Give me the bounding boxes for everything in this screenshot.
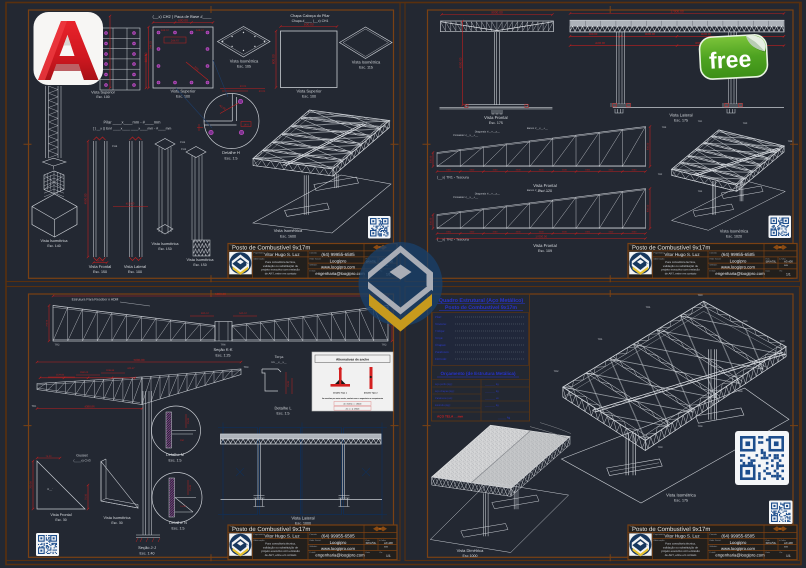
svg-text:450.00: 450.00 [126,202,135,206]
svg-text:Rede Social:: Rede Social: [310,539,322,542]
svg-text:Rede Social:: Rede Social: [710,539,722,542]
svg-text:Pilar ____x____mm - #____mm: Pilar ____x____mm - #____mm [104,120,162,125]
svg-text:75.00: 75.00 [85,493,88,500]
svg-text:Proprietário:: Proprietário: [654,533,665,536]
svg-text:164.67: 164.67 [161,29,169,32]
svg-text:[ ] __x () Enri ____x____ ____: [ ] __x () Enri ____x____ ____x____mm - … [93,127,172,131]
svg-text:Gusset: Gusset [76,454,87,458]
svg-text:TR1: TR1 [32,405,37,408]
svg-text:3400: 3400 [539,168,545,171]
svg-text:A3 400: A3 400 [384,541,393,545]
svg-text:www.loogipro.com: www.loogipro.com [321,546,355,551]
svg-text:engenharia@loogipro.com: engenharia@loogipro.com [715,271,765,276]
svg-text:AÇO TELA __mm: AÇO TELA __mm [437,415,463,419]
svg-text:700.00: 700.00 [46,319,49,326]
svg-text:1/1: 1/1 [386,554,391,558]
svg-text:TR3: TR3 [662,126,667,129]
svg-text:Vista Isométrica: Vista Isométrica [274,228,303,233]
svg-text:3400: 3400 [562,230,568,233]
svg-text:(__x) TR2 - Tesoura: (__x) TR2 - Tesoura [437,238,469,242]
svg-text:Esc. 175: Esc. 175 [674,499,688,503]
svg-text:Esc. 105: Esc. 105 [237,65,251,69]
svg-text:Detalhe Tipo 2: Detalhe Tipo 2 [364,392,379,395]
svg-text:Aço chapas (kg):: Aço chapas (kg): [435,390,455,393]
svg-text:Observação:: Observação: [654,257,666,260]
svg-text:430.00: 430.00 [96,259,104,262]
svg-text:TR9: TR9 [568,394,573,397]
svg-text:(64) 99955-6585: (64) 99955-6585 [721,533,755,538]
svg-text:Posto de Combustível 9x17m: Posto de Combustível 9x17m [632,526,710,533]
svg-text:3400: 3400 [446,168,452,171]
svg-text:Banzo #__x__+__: Banzo #__x__+__ [527,127,549,130]
svg-text:TR2: TR2 [658,173,663,176]
svg-text:8500.00: 8500.00 [701,32,712,36]
svg-text:Detalhe H: Detalhe H [222,150,240,155]
svg-text:Alternativas de ancho: Alternativas de ancho [336,358,369,362]
svg-text:Proprietário:: Proprietário: [654,251,665,254]
svg-text:164.67: 164.67 [196,29,204,32]
svg-text:Vista Superior: Vista Superior [170,89,196,94]
svg-text:R__': R__' [47,488,53,491]
svg-text:Posto de Combustível 9x17m: Posto de Combustível 9x17m [632,244,710,251]
svg-text:Contato:: Contato: [310,533,318,536]
svg-text:_______ kg: _______ kg [484,404,499,407]
svg-text:15.00: 15.00 [180,505,186,508]
svg-text:_____ kg: _____ kg [497,416,511,420]
svg-text:Terça: Terça [275,355,284,359]
svg-text:(64) 99955-6585: (64) 99955-6585 [321,252,355,257]
svg-text:Esc. 175: Esc. 175 [674,119,688,123]
svg-text:Data:: Data: [766,551,771,554]
svg-text:30.05: 30.05 [240,85,247,88]
svg-text:3400: 3400 [469,168,475,171]
svg-text:Parafusos (un):: Parafusos (un): [435,397,453,400]
svg-text:Esc. 1:5: Esc. 1:5 [169,459,182,463]
svg-text:8500.00: 8500.00 [645,32,656,36]
svg-text:Contato:: Contato: [710,533,718,536]
svg-text:Detalhe N: Detalhe N [169,520,187,525]
svg-text:Quadro Estrutural (Aço Metálic: Quadro Estrutural (Aço Metálico) [439,298,524,304]
svg-text:3400: 3400 [585,168,591,171]
svg-text:Parafusos:: Parafusos: [435,350,450,354]
svg-text:Observação:: Observação: [254,539,266,542]
svg-text:3400: 3400 [585,230,591,233]
svg-text:3400: 3400 [539,230,545,233]
svg-text:4388.86: 4388.86 [84,404,95,408]
svg-text:TR2: TR2 [608,418,613,421]
svg-text:Website:: Website: [310,264,318,267]
svg-text:_______ kg: _______ kg [484,390,499,393]
svg-text:BRASIL: BRASIL [766,259,777,263]
svg-text:CH4: CH4 [112,145,118,148]
svg-text:_______ kg: _______ kg [484,383,499,386]
svg-text:Fls:: Fls: [380,551,384,554]
svg-text:TR3: TR3 [788,140,793,143]
svg-text:Chapas:: Chapas: [435,343,446,347]
svg-text:Vista Lateral: Vista Lateral [124,264,146,269]
svg-text:Orçamento (de Estrutura Metáli: Orçamento (de Estrutura Metálica) [440,371,516,376]
svg-text:244.67: 244.67 [171,39,180,43]
svg-text:Proprietário:: Proprietário: [254,533,265,536]
svg-text:Website:: Website: [710,545,718,548]
svg-text:Esc. 100: Esc. 100 [128,270,142,274]
svg-text:4500.00: 4500.00 [84,193,88,204]
svg-text:TR6: TR6 [743,320,748,323]
svg-text:Esc. 100: Esc. 100 [176,95,190,99]
svg-text:75.00: 75.00 [187,417,190,424]
svg-text:3400: 3400 [446,230,452,233]
svg-text:TR1: TR1 [698,120,703,123]
svg-text:825.67: 825.67 [201,312,209,315]
svg-text:30.05: 30.05 [259,90,266,93]
svg-text:Vitor Hugo S. Luz: Vitor Hugo S. Luz [264,534,300,539]
svg-text:500.00: 500.00 [430,155,433,163]
svg-text:750.00: 750.00 [30,481,33,489]
svg-text:engenharia@loogipro.com: engenharia@loogipro.com [315,271,365,276]
svg-text:3400: 3400 [516,230,522,233]
svg-text:Esc. 1:25: Esc. 1:25 [216,354,231,358]
svg-text:Vista Lateral: Vista Lateral [669,113,692,118]
svg-text:500.00: 500.00 [589,32,598,36]
svg-text:75.00: 75.00 [189,484,192,491]
svg-text:TR0: TR0 [743,122,748,125]
svg-text:4500.00: 4500.00 [595,41,606,45]
svg-text:Esc. 175: Esc. 175 [489,121,503,125]
svg-text:Pilar:: Pilar: [435,315,442,319]
svg-text:TR2: TR2 [554,370,559,373]
svg-text:Esc. 150: Esc. 150 [158,247,171,251]
svg-text:TR1: TR1 [598,338,603,341]
svg-text:Treliça:: Treliça: [435,329,445,333]
svg-text:Vitor Hugo S. Luz: Vitor Hugo S. Luz [264,252,300,257]
svg-text:Rede Social:: Rede Social: [710,257,722,260]
svg-text:3400: 3400 [492,168,498,171]
svg-text:Proprietário:: Proprietário: [254,251,265,254]
svg-text:Data:: Data: [766,269,771,272]
svg-text:14/4: 14/4 [243,123,249,126]
svg-text:Seção K-K: Seção K-K [213,347,232,352]
svg-text:3400: 3400 [562,168,568,171]
svg-text:600.00: 600.00 [272,54,276,64]
svg-text:Esc. 150: Esc. 150 [93,270,107,274]
svg-text:Vista Frontal: Vista Frontal [533,243,556,248]
svg-text:www.loogipro.com: www.loogipro.com [721,264,755,269]
svg-text:Rede Social:: Rede Social: [310,257,322,260]
svg-text:3400: 3400 [631,230,637,233]
svg-text:www.loogipro.com: www.loogipro.com [721,546,755,551]
svg-text:Vitor Hugo S. Luz: Vitor Hugo S. Luz [664,534,700,539]
svg-text:TR4: TR4 [698,190,703,193]
svg-text:Banzo #__x__+__: Banzo #__x__+__ [527,189,549,192]
svg-text:de ART, entre em contato: de ART, entre em contato [265,272,297,276]
svg-text:Estrutura Para Receber o ADM: Estrutura Para Receber o ADM [72,298,119,302]
svg-text:Esc. 100: Esc. 100 [96,95,109,99]
svg-text:625.67: 625.67 [239,312,247,315]
svg-text:Diagonais #__+__x__: Diagonais #__+__x__ [475,193,501,196]
svg-text:Esc 1000: Esc 1000 [463,554,478,558]
svg-text:1/1: 1/1 [786,554,791,558]
svg-text:3400: 3400 [608,168,614,171]
svg-text:344.53: 344.53 [150,40,153,48]
svg-text:Vista Isométrica: Vista Isométrica [352,60,381,65]
svg-text:900.00: 900.00 [647,204,650,212]
svg-text:Observação:: Observação: [254,257,266,260]
svg-text:(__x) TR1 - Tesoura: (__x) TR1 - Tesoura [437,176,469,180]
svg-text:Esc. 1:5: Esc. 1:5 [172,527,185,531]
svg-text:_______ un: _______ un [484,397,499,400]
svg-text:Website:: Website: [310,545,318,548]
svg-text:Detalhe L: Detalhe L [274,406,292,411]
svg-text:9000.00: 9000.00 [491,10,503,14]
svg-text:BRASIL: BRASIL [766,541,777,545]
svg-text:3400: 3400 [516,168,522,171]
svg-text:Chapa Cabeça do Pilar: Chapa Cabeça do Pilar [290,14,330,18]
svg-text:mm: mm [784,264,788,267]
svg-text:Detalhe M: Detalhe M [166,452,184,457]
svg-text:825.67: 825.67 [127,367,135,370]
svg-text:600.00: 600.00 [178,18,188,22]
svg-text:TR3: TR3 [244,366,249,369]
svg-text:TR1: TR1 [646,306,651,309]
svg-text:free: free [708,46,752,74]
svg-text:Diagonais #__+__x__: Diagonais #__+__x__ [475,131,501,134]
svg-text:Data:: Data: [366,551,371,554]
svg-text:A3 400: A3 400 [784,541,793,545]
svg-text:1/1: 1/1 [786,273,791,277]
svg-text:150: 150 [180,439,185,442]
svg-text:Esc. 1:40: Esc. 1:40 [140,552,155,556]
svg-text:Vista Frontal: Vista Frontal [533,183,556,188]
svg-text:Vista Lateral: Vista Lateral [291,516,314,521]
svg-text:Vista Isométrica: Vista Isométrica [187,258,215,262]
svg-text:Terça:: Terça: [435,336,443,340]
svg-text:17000.00: 17000.00 [535,234,547,238]
svg-text:1500.00: 1500.00 [80,371,89,374]
svg-text:Posto de Combustível 9x17m: Posto de Combustível 9x17m [232,526,310,533]
svg-text:Esc. 30: Esc. 30 [111,521,122,525]
svg-text:Esc. 140: Esc. 140 [47,244,60,248]
svg-text:TR4: TR4 [698,425,703,428]
svg-text:Vista Superior: Vista Superior [296,89,322,94]
svg-text:Esc. 1:5: Esc. 1:5 [225,157,238,161]
svg-text:Observação:: Observação: [654,539,666,542]
svg-text:mm: mm [784,546,788,549]
svg-text:Se escolher por outro modo, co: Se escolher por outro modo, conferir com… [322,397,384,400]
svg-text:Contato:: Contato: [310,251,318,254]
svg-text:de ART, entre em contato: de ART, entre em contato [665,553,697,557]
svg-text:CH1: CH1 [181,148,187,151]
svg-text:A3 400: A3 400 [784,259,793,263]
svg-text:TR8: TR8 [614,360,619,363]
svg-text:Pontalete U__x__+__: Pontalete U__x__+__ [453,134,479,137]
svg-text:Pontalete U__x__+__: Pontalete U__x__+__ [453,196,479,199]
svg-text:U6 __x__x__: U6 __x__x__ [271,361,287,364]
svg-text:3400: 3400 [631,168,637,171]
svg-text:Posto de Combustível 9x17m: Posto de Combustível 9x17m [232,244,310,251]
svg-text:Contato:: Contato: [710,251,718,254]
svg-text:Posto de Combustível 9x17m: Posto de Combustível 9x17m [445,305,517,311]
svg-text:900.00: 900.00 [647,142,650,150]
svg-text:Esc. 150: Esc. 150 [193,263,206,267]
svg-text:Vista Frontal: Vista Frontal [484,115,507,120]
svg-text:TR9: TR9 [658,446,663,449]
svg-text:Aço perfis (kg):: Aço perfis (kg): [435,383,453,386]
svg-text:de ART, entre em contato: de ART, entre em contato [665,272,697,276]
svg-text:aC malha x = 185aE: aC malha x = 185aE [343,403,362,406]
svg-text:17000.00: 17000.00 [670,9,684,13]
svg-text:Tesoura:: Tesoura: [435,322,447,326]
svg-text:Vista Dimétrica: Vista Dimétrica [457,548,485,553]
svg-text:Loogipro: Loogipro [330,540,347,545]
svg-text:Loogipro: Loogipro [330,258,347,263]
svg-text:Fls:: Fls: [780,551,784,554]
svg-text:75.00: 75.00 [46,455,53,458]
svg-text:TR2: TR2 [382,344,387,347]
svg-text:engenharia@loogipro.com: engenharia@loogipro.com [715,553,765,558]
svg-text:TR2: TR2 [55,344,60,347]
svg-text:Esc. 115: Esc. 115 [359,66,373,70]
svg-text:Esc. 1020: Esc. 1020 [726,235,742,239]
svg-text:Loogipro: Loogipro [730,540,747,545]
svg-text:TR0: TR0 [780,340,785,343]
svg-text:Esc. 109: Esc. 109 [538,249,552,253]
svg-text:Detalhe Tipo 1: Detalhe Tipo 1 [333,392,348,395]
svg-text:de ART, entre em contato: de ART, entre em contato [265,553,297,557]
svg-text:Fls:: Fls: [780,269,784,272]
svg-text:www.loogipro.com: www.loogipro.com [321,264,355,269]
svg-text:600.00: 600.00 [144,52,148,62]
svg-text:Eletrodo:: Eletrodo: [435,357,447,361]
svg-text:(64) 99955-6585: (64) 99955-6585 [721,252,755,257]
svg-text:Vista Superior: Vista Superior [91,91,116,95]
svg-text:Esc. 1:5: Esc. 1:5 [277,412,290,416]
svg-text:3400: 3400 [492,230,498,233]
svg-text:3400: 3400 [469,230,475,233]
svg-text:TR0: TR0 [698,294,703,297]
svg-text:Loogipro: Loogipro [730,258,747,263]
svg-text:5000.00: 5000.00 [215,292,226,296]
svg-text:75.00: 75.00 [287,380,290,387]
svg-text:Vista Isométrica: Vista Isométrica [720,229,749,234]
svg-text:Eletrodo (kg):: Eletrodo (kg): [435,404,451,407]
svg-text:3400: 3400 [608,230,614,233]
svg-text:5000.00: 5000.00 [134,358,145,362]
svg-text:Seção J-J: Seção J-J [138,545,156,550]
svg-text:Vitor Hugo S. Luz: Vitor Hugo S. Luz [664,252,700,257]
svg-text:Website:: Website: [710,264,718,267]
svg-text:600.00: 600.00 [304,22,314,26]
svg-text:Esc. 1600: Esc. 1600 [280,235,296,239]
svg-text:(64) 99955-6585: (64) 99955-6585 [321,533,355,538]
svg-text:Esc. 30: Esc. 30 [55,518,66,522]
svg-text:Vista Isométrica: Vista Isométrica [666,493,696,498]
svg-text:500.00: 500.00 [430,217,433,225]
svg-text:1938.86: 1938.86 [106,369,115,372]
svg-text:Vista Frontal: Vista Frontal [50,513,71,517]
svg-text:mm: mm [384,546,388,549]
svg-text:1129.60: 1129.60 [56,374,65,377]
svg-text:Vista Isométrica: Vista Isométrica [41,239,69,243]
svg-text:4500.00: 4500.00 [458,57,462,68]
svg-text:BRASIL: BRASIL [366,541,377,545]
svg-text:Vista Isométrica: Vista Isométrica [104,516,132,520]
svg-text:engenharia@loogipro.com: engenharia@loogipro.com [315,553,365,558]
svg-text:Vista Frontal: Vista Frontal [89,264,111,269]
svg-text:Vista Isométrica: Vista Isométrica [152,242,180,246]
svg-text:Vista Isométrica: Vista Isométrica [230,59,259,64]
svg-text:aC x = p 185aE: aC x = p 185aE [346,407,361,410]
svg-text:(____x) CH3: (____x) CH3 [73,459,90,463]
svg-text:Esc. 100: Esc. 100 [302,95,316,99]
svg-text:CH1: CH1 [180,141,186,144]
